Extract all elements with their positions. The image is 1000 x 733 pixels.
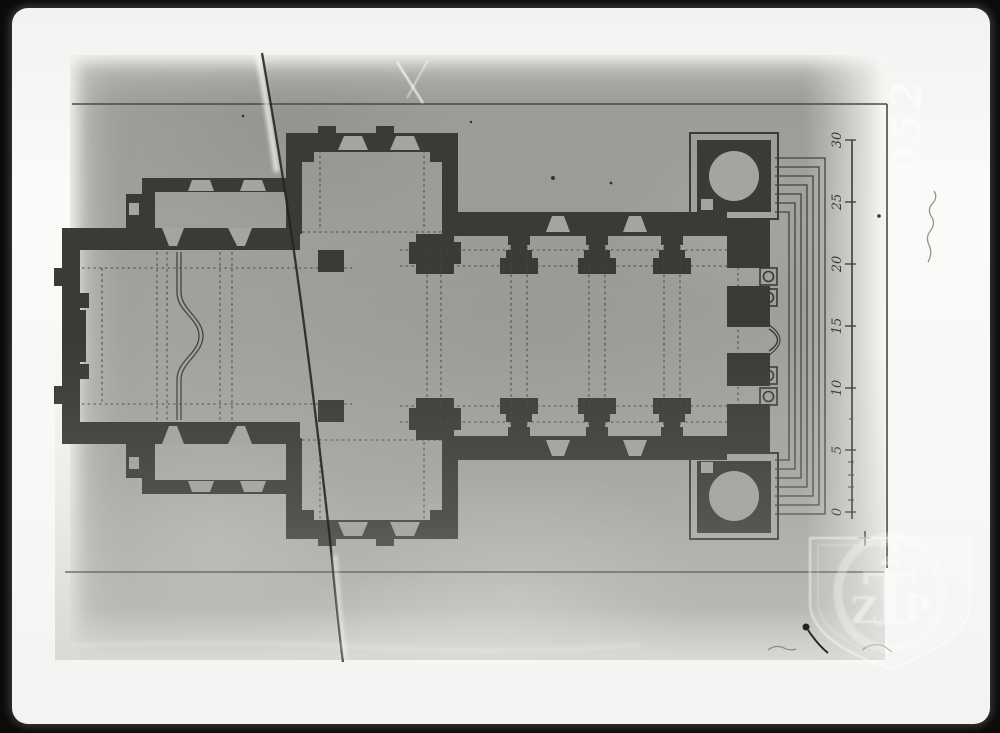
white-scratch-2 <box>407 60 428 98</box>
transept-north-arm <box>286 126 458 234</box>
scale-label-15: 15 <box>830 318 845 335</box>
tower-notch <box>701 199 713 210</box>
tower-north <box>690 133 778 219</box>
column-base <box>760 268 777 285</box>
arcade-pier <box>653 242 691 274</box>
arm-n-corner-pier-1 <box>302 152 314 162</box>
arm-n-buttress-1 <box>318 126 336 134</box>
arm-n-corner-pier-2 <box>430 152 442 162</box>
archival-photo-scan: { "photograph": { "inventory_number": "4… <box>0 0 1000 733</box>
spiral-stair <box>709 151 759 201</box>
scale-label-20: 20 <box>830 256 845 274</box>
sacristy-n-window-1 <box>188 180 214 191</box>
crossing-pier-n-c <box>416 262 454 274</box>
arm-n-top-wall <box>286 133 458 152</box>
column-shaft <box>764 272 774 282</box>
watermark-letter-t: T <box>862 557 917 643</box>
scale-label-25: 25 <box>830 194 845 212</box>
white-flare-top <box>258 55 277 172</box>
ink-blot <box>803 624 810 631</box>
exposure-fade <box>55 340 885 660</box>
chancel-junction-pier-n <box>318 250 344 272</box>
dust-specks <box>242 115 881 218</box>
sacristy-n-annex-door <box>129 203 139 215</box>
sacristy-n-window-2 <box>240 180 266 191</box>
scale-label-30: 30 <box>830 132 845 149</box>
facade-wall-1 <box>727 219 770 268</box>
sacristy-n-left-wall <box>142 178 155 250</box>
arcade-pier <box>500 242 538 274</box>
drawing-overlay: 30 25 20 15 10 5 0 <box>0 0 1000 733</box>
arcade-pier <box>578 242 616 274</box>
apse-buttress-n <box>54 268 63 286</box>
apse-pilaster-n <box>80 293 89 308</box>
nave-north-wall <box>450 212 727 236</box>
white-scratch-1 <box>397 62 423 103</box>
arm-n-buttress-2 <box>376 126 394 134</box>
crossing-pier-n-b <box>409 242 461 264</box>
sacristy-n-top-wall <box>142 178 292 192</box>
inventory-number: 4052 <box>884 76 931 207</box>
